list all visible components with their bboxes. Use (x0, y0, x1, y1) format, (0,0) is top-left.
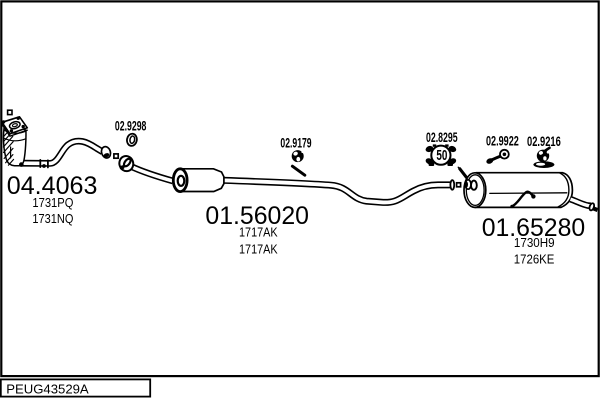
svg-text:02.9216: 02.9216 (527, 133, 561, 149)
svg-text:02.9179: 02.9179 (280, 134, 311, 150)
svg-text:1731PQ: 1731PQ (32, 195, 73, 210)
svg-text:1726KE: 1726KE (514, 251, 555, 266)
svg-text:1731NQ: 1731NQ (32, 211, 73, 226)
svg-text:02.9922: 02.9922 (486, 132, 519, 148)
svg-text:PEUG43529A: PEUG43529A (6, 381, 89, 396)
svg-text:1717AK: 1717AK (239, 225, 278, 240)
svg-text:1730H9: 1730H9 (514, 235, 555, 250)
svg-text:50: 50 (436, 148, 447, 164)
svg-text:02.9298: 02.9298 (115, 118, 147, 134)
svg-text:02.8295: 02.8295 (426, 129, 458, 145)
svg-text:1717AK: 1717AK (239, 242, 278, 257)
